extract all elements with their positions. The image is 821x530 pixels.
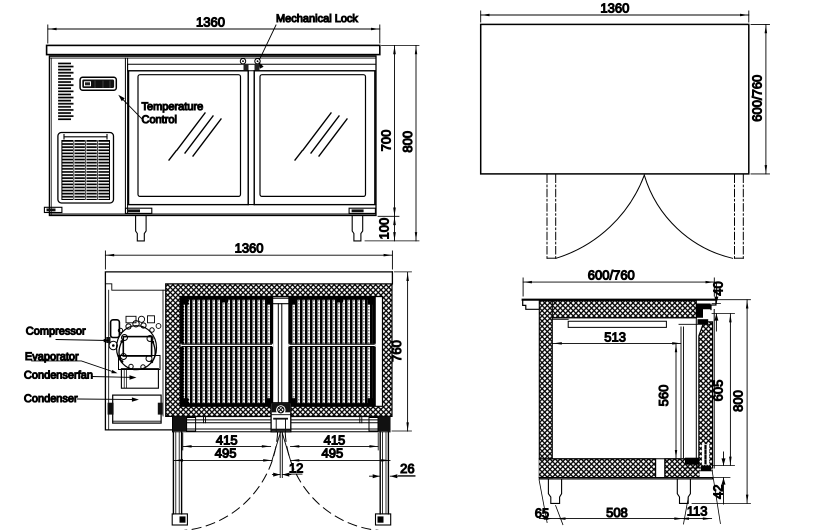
svg-text:12: 12 [289,461,303,476]
svg-text:495: 495 [322,445,344,460]
svg-text:600/760: 600/760 [588,268,635,283]
svg-text:495: 495 [215,445,237,460]
svg-text:Temperature: Temperature [142,101,204,113]
svg-text:700: 700 [379,130,394,152]
svg-text:Compressor: Compressor [26,326,86,338]
svg-text:508: 508 [606,505,628,520]
svg-text:Mechanical Lock: Mechanical Lock [276,13,358,25]
svg-text:605: 605 [711,380,726,402]
svg-text:Condenser: Condenser [24,393,78,405]
svg-text:Condenserfan: Condenserfan [24,370,93,382]
svg-text:1360: 1360 [196,15,225,30]
svg-text:800: 800 [731,390,746,412]
svg-text:40: 40 [711,281,726,295]
svg-text:1360: 1360 [600,0,629,15]
svg-text:100: 100 [377,218,392,240]
svg-text:513: 513 [604,329,626,344]
svg-text:1360: 1360 [235,241,264,256]
svg-text:760: 760 [389,340,404,362]
svg-text:113: 113 [687,504,708,519]
svg-text:Control: Control [142,114,177,126]
svg-text:600/760: 600/760 [750,75,765,122]
svg-text:42: 42 [710,485,725,499]
svg-text:26: 26 [400,461,414,476]
svg-text:800: 800 [400,131,415,153]
svg-text:560: 560 [656,385,671,407]
svg-text:65: 65 [535,505,549,520]
